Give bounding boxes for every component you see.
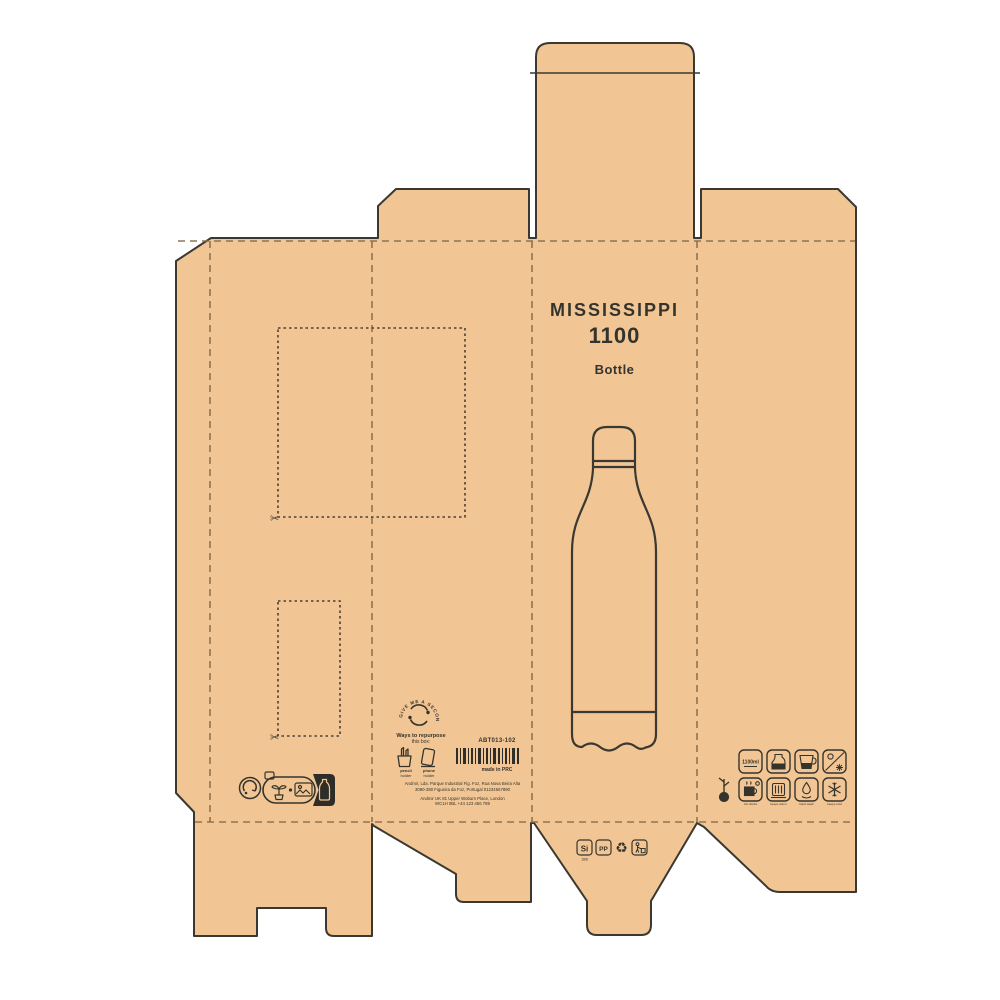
scissors-icon: ✂ — [270, 732, 279, 744]
hand-wash-label: hand wash — [799, 802, 814, 806]
scissors-icon: ✂ — [270, 513, 279, 525]
manufacturer-address: Andmir, Lda. Parque Industrial Fig. Foz,… — [370, 781, 555, 807]
sku-code: ABT013-102 — [452, 738, 542, 744]
capacity-label: 1100ml — [742, 760, 759, 766]
barcode — [456, 748, 519, 764]
phone-label-line2: holder — [415, 774, 443, 779]
keeps-cold-label: keeps cold — [827, 802, 842, 806]
product-capacity: 1100 — [532, 323, 697, 349]
phone-holder-label: phone holder — [415, 769, 443, 778]
dieline-drawing: ✂ ✂ GIVE ME A SECOND LIFE — [0, 0, 1000, 1000]
pp-code: PP — [599, 846, 608, 853]
product-title: MISSISSIPPI — [532, 300, 697, 321]
keep-warm-label: keeps warm — [770, 802, 787, 806]
steel-code: Si — [581, 845, 589, 854]
address-line: WC1H 0BL +44 123 456 789 — [370, 801, 555, 807]
origin-label: made in PRC — [452, 767, 542, 773]
box-dieline-canvas: ✂ ✂ GIVE ME A SECOND LIFE — [0, 0, 1000, 1000]
repurpose-heading-line2: this box: — [386, 739, 456, 745]
recycle-icon: ♻ — [615, 840, 628, 856]
hot-drinks-label: hot drinks — [744, 802, 758, 806]
repurpose-heading: Ways to repurpose this box: — [386, 733, 456, 745]
steel-sub: 18/8 — [581, 858, 588, 862]
product-type: Bottle — [532, 362, 697, 377]
separator-dot — [289, 788, 292, 791]
